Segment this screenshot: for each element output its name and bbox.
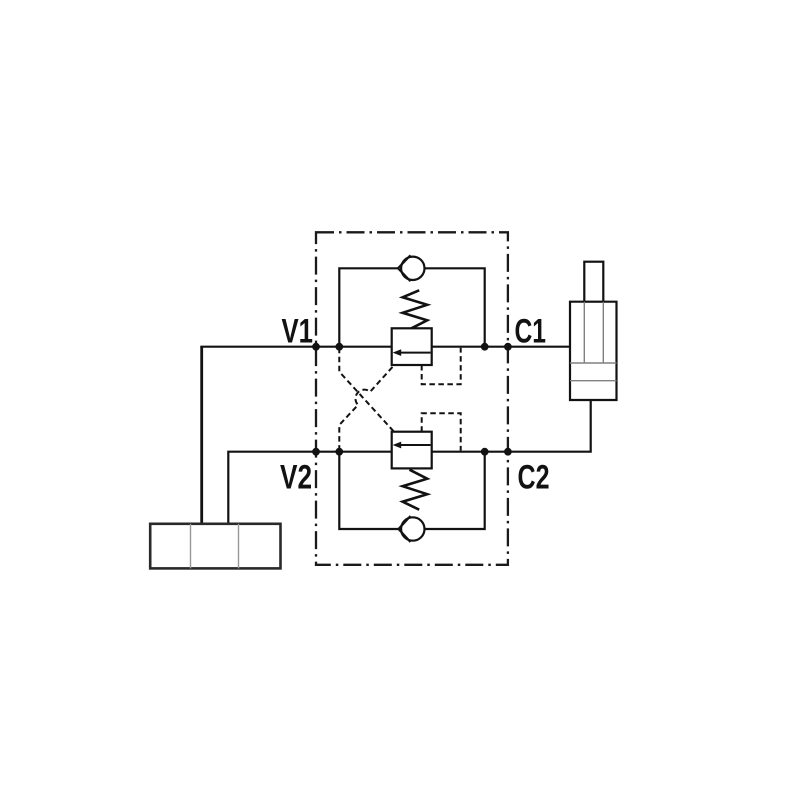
cross-pilot-line-v2-to-top-valve [339,365,394,450]
counterbalance-valve-bottom-body [392,432,432,469]
junction-dot [481,343,489,351]
port-label-c1: C1 [515,313,547,351]
junction-dot [335,343,343,351]
junction-dot [504,343,512,351]
counterbalance-valve-top-icon [392,290,432,365]
check-valve-bottom-icon [399,516,425,542]
junction-dot [481,448,489,456]
junction-dot [312,343,320,351]
hydraulic-schematic: V1 C1 V2 C2 [0,0,800,800]
directional-valve-outline [150,524,280,569]
junction-dot [335,448,343,456]
spring-top-icon [403,290,428,329]
check-valve-top-icon [398,255,424,281]
top-check-loop-right [425,268,485,346]
counterbalance-valve-top-body [392,328,432,365]
hydraulic-cylinder-icon [570,262,617,400]
valve-assembly-boundary [316,232,508,565]
junction-dot [504,448,512,456]
port-label-c2: C2 [518,459,550,497]
c2-line [432,400,591,452]
port-label-v2: V2 [280,459,312,497]
junction-dot [312,448,320,456]
bottom-check-loop-right [425,452,485,529]
top-check-loop-left [339,268,398,346]
port-label-v1: V1 [282,313,314,351]
schematic-canvas: V1 C1 V2 C2 [0,0,800,800]
directional-valve-block-icon [150,524,280,569]
cylinder-rod [584,262,603,302]
spring-bottom-icon [403,470,428,510]
counterbalance-valve-bottom-icon [392,432,432,510]
cylinder-body-fill [570,302,617,400]
bottom-check-loop-left [339,452,398,529]
